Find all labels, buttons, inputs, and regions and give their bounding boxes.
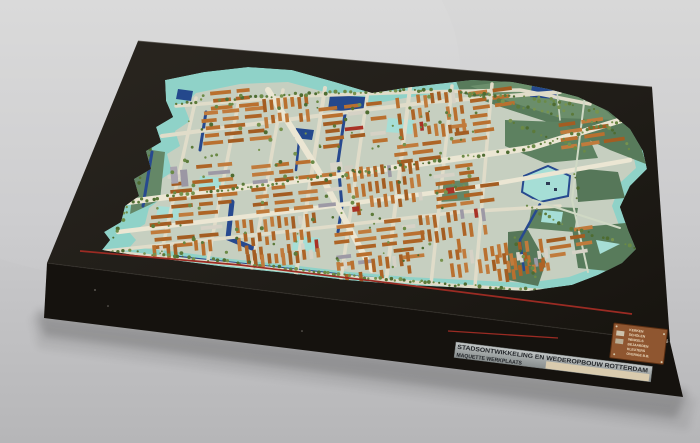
tree <box>161 250 163 252</box>
tree <box>274 94 276 96</box>
tree <box>403 227 406 230</box>
tree <box>556 115 558 117</box>
tree <box>582 131 584 133</box>
tree <box>473 156 475 158</box>
tree <box>256 185 259 188</box>
tree <box>140 197 143 200</box>
tree <box>558 101 561 104</box>
tree <box>588 231 590 233</box>
tree <box>427 280 431 284</box>
tree <box>422 247 425 250</box>
tree <box>268 264 270 266</box>
tree <box>210 190 213 193</box>
tree <box>489 286 492 289</box>
tree <box>488 93 491 96</box>
legend-chip-2 <box>615 338 624 344</box>
tree <box>212 257 215 260</box>
pond-mark <box>554 188 557 191</box>
tree <box>482 154 485 157</box>
tree <box>497 98 501 102</box>
landmark-building <box>330 162 343 171</box>
tree <box>159 252 161 254</box>
tree <box>271 96 273 98</box>
tree <box>398 160 401 163</box>
tree <box>448 89 452 93</box>
tree <box>304 103 308 107</box>
tree <box>221 190 223 192</box>
tree <box>137 250 139 252</box>
tree <box>392 266 394 268</box>
tree <box>349 90 352 93</box>
tree <box>576 229 578 231</box>
tree <box>324 178 328 182</box>
tree <box>353 92 356 95</box>
tree <box>319 145 322 148</box>
tree <box>215 153 218 156</box>
tree <box>344 173 348 177</box>
tree <box>550 97 553 100</box>
tree <box>552 140 554 142</box>
tree <box>304 93 308 97</box>
tree <box>613 132 616 135</box>
tree <box>439 152 442 155</box>
tree <box>244 232 247 235</box>
tree <box>311 218 315 222</box>
tree <box>541 110 544 113</box>
tree <box>344 273 346 275</box>
tree <box>365 110 369 114</box>
tree <box>532 144 536 148</box>
tree <box>550 112 553 115</box>
tree <box>529 262 532 265</box>
tree <box>477 154 481 158</box>
tree <box>532 130 535 133</box>
tree <box>596 121 598 123</box>
tree <box>611 129 614 132</box>
tree <box>189 204 191 206</box>
tree <box>261 201 264 204</box>
tree <box>534 276 537 279</box>
tree <box>186 160 189 163</box>
tree <box>343 90 347 94</box>
tree <box>374 277 377 280</box>
tree <box>275 183 277 185</box>
tree <box>403 278 406 281</box>
tree <box>585 119 587 121</box>
tree <box>593 108 595 110</box>
tree <box>408 106 411 109</box>
tree <box>192 184 196 188</box>
tree <box>225 98 229 102</box>
tree <box>228 103 231 106</box>
tree <box>420 280 423 283</box>
tree <box>272 265 275 268</box>
tree <box>297 233 299 235</box>
tree <box>337 259 340 262</box>
tree <box>235 237 238 240</box>
tree <box>472 131 474 133</box>
tree <box>122 218 126 222</box>
tree <box>465 91 468 94</box>
tree <box>239 94 243 98</box>
tree <box>509 119 513 123</box>
tree <box>168 225 170 227</box>
tree <box>201 241 204 244</box>
tree <box>570 132 573 135</box>
tree <box>162 253 165 256</box>
tree <box>167 253 170 256</box>
tree <box>445 111 448 114</box>
tree <box>473 93 476 96</box>
tree <box>351 201 355 205</box>
tree <box>371 147 373 149</box>
tree <box>170 170 174 174</box>
tree <box>375 170 377 172</box>
tree <box>279 128 283 132</box>
tree <box>402 260 404 262</box>
tree <box>628 243 632 247</box>
tree <box>181 103 183 105</box>
tree <box>116 230 119 233</box>
tree <box>148 155 150 157</box>
tree <box>328 90 331 93</box>
tree <box>254 95 257 98</box>
tree <box>323 271 326 274</box>
tree <box>317 107 319 109</box>
tree <box>422 163 424 165</box>
tree <box>260 226 264 230</box>
tree <box>475 112 478 115</box>
tree <box>545 136 547 138</box>
tree <box>387 241 390 244</box>
tree <box>568 142 572 146</box>
tree <box>215 105 219 109</box>
tree <box>151 254 153 256</box>
tree <box>190 102 192 104</box>
tree <box>531 271 534 274</box>
tree <box>280 94 284 98</box>
tree <box>231 174 235 178</box>
tree <box>573 146 577 150</box>
tree <box>522 107 524 109</box>
tree <box>547 111 550 114</box>
tree <box>463 184 465 186</box>
tree <box>307 177 310 180</box>
tree <box>591 121 593 123</box>
tree <box>302 269 305 272</box>
tree <box>531 266 535 270</box>
tree <box>513 148 516 151</box>
tree <box>544 100 547 103</box>
tree <box>429 88 433 92</box>
tree <box>399 89 402 92</box>
tree <box>440 259 443 262</box>
tree <box>373 223 375 225</box>
tree <box>299 93 303 97</box>
tree <box>282 183 285 186</box>
tree <box>257 123 261 127</box>
tree <box>341 175 344 178</box>
tree <box>137 181 141 185</box>
tree <box>271 183 274 186</box>
tree <box>305 132 307 134</box>
tree <box>422 88 426 92</box>
tree <box>536 208 538 210</box>
tree <box>360 92 362 94</box>
tree <box>500 286 504 290</box>
tree <box>332 216 335 219</box>
tree <box>519 288 522 291</box>
tree <box>544 141 546 143</box>
tree <box>496 150 499 153</box>
tree <box>153 198 156 201</box>
tree <box>209 123 213 127</box>
tree <box>513 95 515 97</box>
tree <box>358 103 362 107</box>
tree <box>557 105 561 109</box>
tree <box>576 186 579 189</box>
tree <box>394 279 396 281</box>
tree <box>340 212 342 214</box>
model-map <box>102 67 647 292</box>
tree <box>202 175 205 178</box>
tree <box>151 224 155 228</box>
tree <box>467 167 470 170</box>
tree <box>247 186 249 188</box>
tree <box>537 99 541 103</box>
tree <box>506 151 510 155</box>
tree <box>234 98 237 101</box>
tree <box>261 183 264 186</box>
tree <box>628 148 630 150</box>
tree <box>279 160 283 164</box>
tree <box>533 97 537 101</box>
tree <box>344 118 347 121</box>
tree <box>390 277 394 281</box>
tree <box>392 125 394 127</box>
tree <box>206 191 208 193</box>
tree <box>324 92 328 96</box>
tree <box>526 205 528 207</box>
tree <box>182 256 184 258</box>
tree <box>452 183 454 185</box>
tree <box>526 105 529 108</box>
tree <box>402 88 405 91</box>
tree <box>402 248 404 250</box>
tree <box>126 206 128 208</box>
tree <box>514 236 516 238</box>
tree <box>577 132 581 136</box>
tree <box>218 99 221 102</box>
tree <box>248 260 251 263</box>
pond <box>176 89 193 101</box>
tree <box>511 104 513 106</box>
tree <box>283 94 285 96</box>
tree <box>573 173 575 175</box>
tree <box>569 227 573 231</box>
tree <box>420 115 422 117</box>
tree <box>599 124 603 128</box>
tree <box>267 184 270 187</box>
tree <box>533 108 536 111</box>
tree <box>513 122 515 124</box>
tree <box>522 255 525 258</box>
tree <box>409 281 412 284</box>
tree <box>277 106 281 110</box>
tree <box>156 207 159 210</box>
tree <box>223 258 227 262</box>
tree <box>379 276 383 280</box>
tree <box>258 149 260 151</box>
tree <box>187 255 191 259</box>
tree <box>383 252 385 254</box>
tree <box>367 171 370 174</box>
tree <box>188 120 190 122</box>
tree <box>179 192 183 196</box>
tree <box>433 281 435 283</box>
tree <box>172 195 175 198</box>
tree <box>519 249 522 252</box>
tree <box>448 158 451 161</box>
tree <box>526 126 529 129</box>
tree <box>482 95 485 98</box>
tree <box>482 92 486 96</box>
tree <box>462 155 465 158</box>
tree <box>503 287 505 289</box>
tree <box>524 287 528 291</box>
tree <box>464 282 467 285</box>
tree <box>394 166 397 169</box>
tree <box>216 189 219 192</box>
tree <box>337 166 341 170</box>
tree <box>329 173 332 176</box>
tree <box>358 170 361 173</box>
tree <box>352 195 356 199</box>
tree <box>552 103 556 107</box>
tree <box>467 154 469 156</box>
tree <box>179 224 181 226</box>
tree <box>317 91 319 93</box>
tree <box>200 98 202 100</box>
tree <box>145 199 148 202</box>
tree <box>308 270 311 273</box>
tree <box>403 143 406 146</box>
tree <box>226 259 229 262</box>
tree <box>351 169 354 172</box>
tree <box>158 221 161 224</box>
tree <box>611 121 613 123</box>
tree <box>501 99 505 103</box>
tree <box>514 242 518 246</box>
tree <box>210 155 213 158</box>
tree <box>454 186 457 189</box>
tree <box>338 92 340 94</box>
tree <box>235 228 239 232</box>
photo-stage: KERKENSCHOLENWINKELSBEJAARDENKLEUTERSOVE… <box>0 0 700 443</box>
tree <box>275 164 278 167</box>
tree <box>250 186 253 189</box>
tree <box>527 146 530 149</box>
tree <box>333 124 336 127</box>
tree <box>468 94 472 98</box>
tree <box>379 217 382 220</box>
tree <box>548 215 551 218</box>
tree <box>625 142 628 145</box>
tree <box>201 128 204 131</box>
tree <box>139 177 142 180</box>
tree <box>337 272 341 276</box>
tree <box>540 134 542 136</box>
tree <box>186 101 189 104</box>
tree <box>591 234 594 237</box>
tree <box>273 243 276 246</box>
tree <box>311 160 315 164</box>
tree <box>384 166 386 168</box>
tree <box>377 145 380 148</box>
tree <box>156 197 159 200</box>
tree <box>332 273 335 276</box>
tree <box>531 207 533 209</box>
tree <box>441 207 444 210</box>
tree <box>468 174 472 178</box>
tree <box>264 130 268 134</box>
tree <box>126 211 128 213</box>
tree <box>351 132 353 134</box>
tree <box>417 254 419 256</box>
tree <box>268 138 272 142</box>
tree <box>448 114 451 117</box>
tree <box>194 101 197 104</box>
tree <box>615 121 618 124</box>
tree <box>588 109 591 112</box>
tree <box>320 175 322 177</box>
tree <box>428 111 430 113</box>
tree <box>414 89 416 91</box>
tree <box>557 221 561 225</box>
tree <box>564 141 567 144</box>
landmark-building <box>352 206 360 212</box>
tree <box>606 236 610 240</box>
tree <box>552 100 555 103</box>
tree <box>294 267 298 271</box>
tree <box>460 91 463 94</box>
tree <box>166 194 169 197</box>
park <box>575 168 625 202</box>
tree <box>595 125 598 128</box>
tree <box>173 191 176 194</box>
tree <box>307 91 311 95</box>
tree <box>249 95 252 98</box>
pond-mark <box>546 182 550 185</box>
tree <box>143 252 146 255</box>
tree <box>444 190 448 194</box>
tree <box>358 275 360 277</box>
tree <box>216 258 220 262</box>
tree <box>360 209 362 211</box>
tree <box>412 280 415 283</box>
tree <box>433 159 437 163</box>
tree <box>183 241 186 244</box>
tree <box>557 138 559 140</box>
tree <box>260 94 264 98</box>
tree <box>564 103 567 106</box>
tree <box>367 277 369 279</box>
tree <box>444 282 447 285</box>
tree <box>552 219 554 221</box>
tree <box>310 178 313 181</box>
tree <box>571 113 574 116</box>
tree <box>428 161 431 164</box>
